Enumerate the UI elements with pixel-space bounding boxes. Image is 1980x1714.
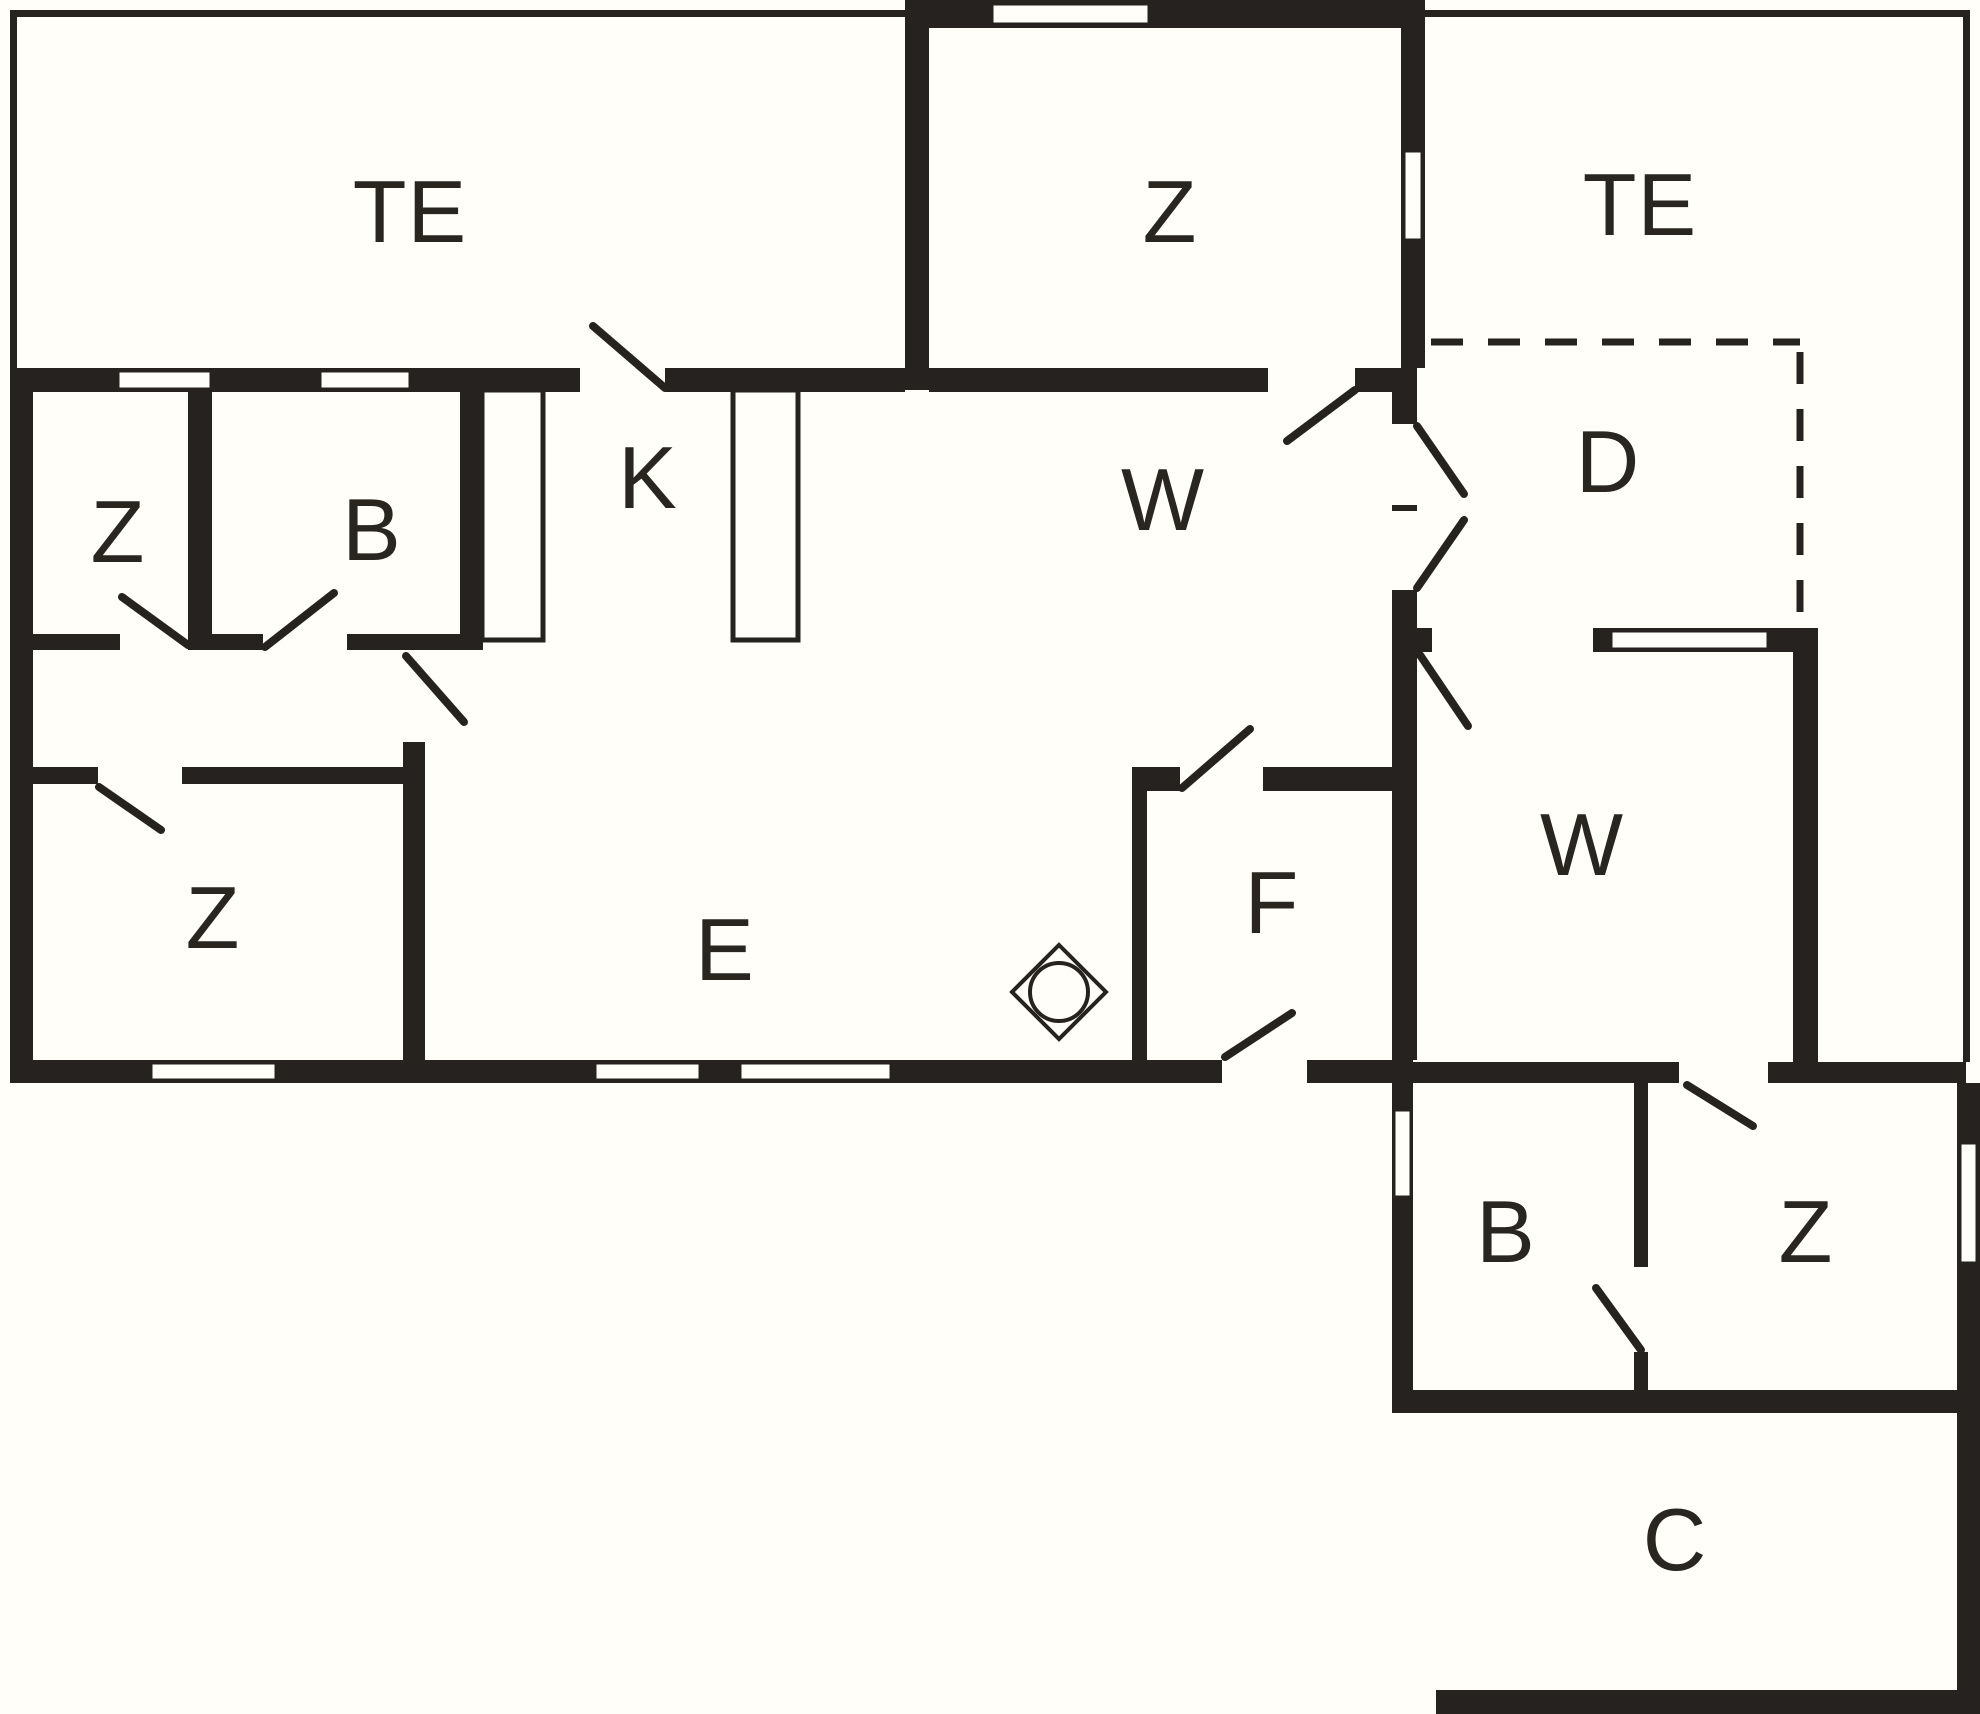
room-label-terrace-top-left: TE <box>353 168 467 256</box>
room-label-bedroom-lower-left: Z <box>186 874 241 962</box>
room-label-dining-room: E <box>695 906 755 994</box>
room-label-bedroom-annex: Z <box>1779 1188 1834 1276</box>
room-label-kitchen: K <box>618 434 678 522</box>
room-label-terrace-top-right: TE <box>1583 161 1697 249</box>
room-label-bathroom-annex: B <box>1476 1188 1536 1276</box>
room-label-bedroom-upper-left: Z <box>91 488 146 576</box>
floor-plan: TE Z TE Z B K W D Z E F W B Z C <box>0 0 1980 1714</box>
exterior-walls <box>10 0 1980 1714</box>
room-label-bathroom-main: B <box>342 486 402 574</box>
floor-plan-drawing <box>0 0 1980 1714</box>
room-label-living-room: W <box>1121 456 1205 544</box>
room-label-utility-room: F <box>1245 859 1300 947</box>
room-label-carport: C <box>1643 1496 1708 1584</box>
room-label-bedroom-top: Z <box>1143 168 1198 256</box>
fireplace-symbol <box>1012 945 1106 1039</box>
room-label-entry: D <box>1576 418 1641 506</box>
room-label-living-room-right: W <box>1540 801 1624 889</box>
